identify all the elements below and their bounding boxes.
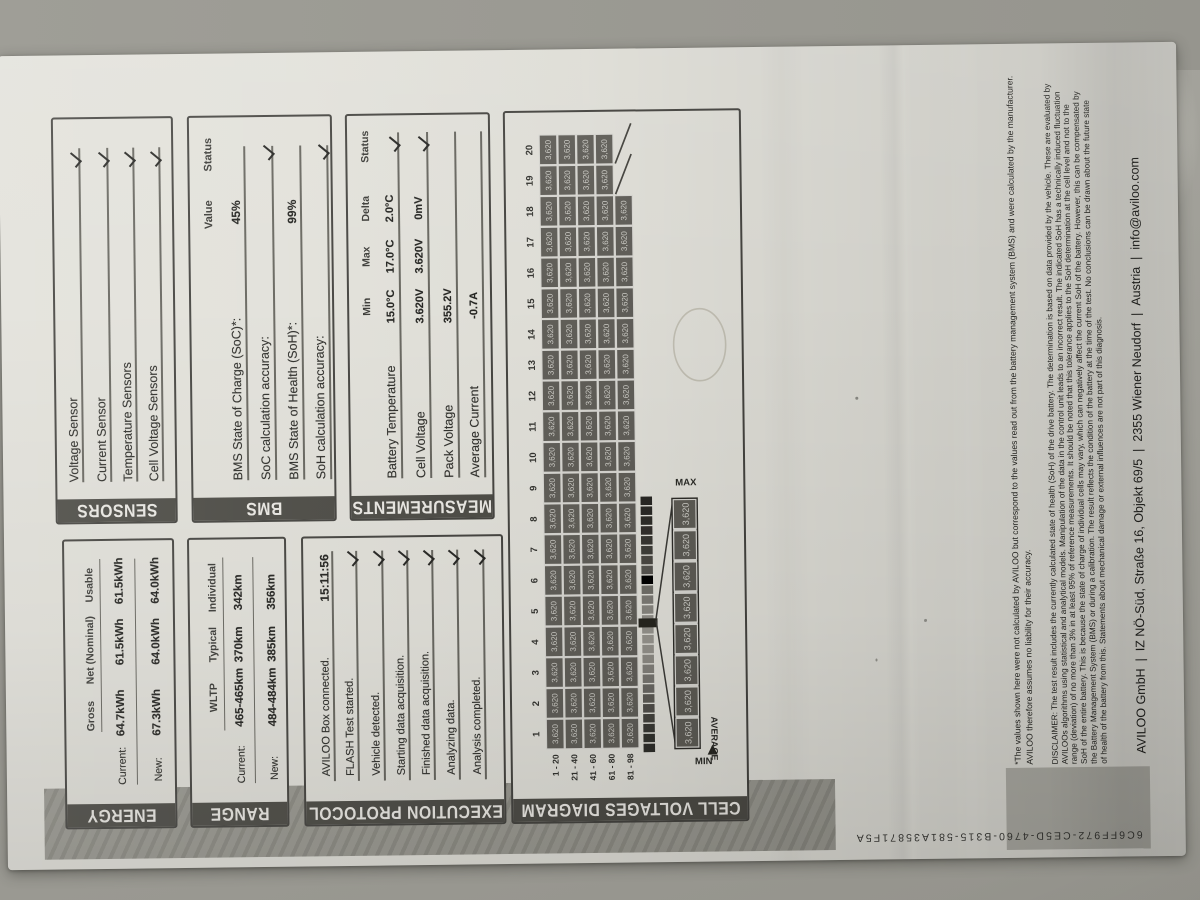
- svg-text:3,620: 3,620: [604, 477, 613, 498]
- svg-text:3,620: 3,620: [607, 692, 616, 713]
- svg-text:3,620: 3,620: [606, 661, 615, 682]
- svg-text:9: 9: [528, 486, 539, 491]
- svg-text:3,620: 3,620: [569, 693, 578, 714]
- svg-text:3,620: 3,620: [549, 570, 558, 591]
- svg-text:3,620: 3,620: [566, 385, 575, 406]
- svg-text:3,620: 3,620: [567, 477, 576, 498]
- svg-text:3,620: 3,620: [624, 569, 633, 590]
- svg-text:3,620: 3,620: [544, 170, 553, 191]
- svg-text:AVERAGE: AVERAGE: [709, 717, 720, 761]
- svg-text:21 - 40: 21 - 40: [569, 754, 579, 781]
- svg-text:3,620: 3,620: [681, 503, 691, 526]
- svg-text:61 - 80: 61 - 80: [607, 753, 617, 780]
- svg-text:3,620: 3,620: [585, 477, 594, 498]
- svg-text:3,620: 3,620: [622, 446, 631, 467]
- svg-text:13: 13: [527, 360, 538, 371]
- svg-text:7: 7: [529, 547, 540, 552]
- svg-text:15: 15: [526, 298, 537, 309]
- svg-text:3,620: 3,620: [567, 508, 576, 529]
- svg-text:3,620: 3,620: [548, 477, 557, 498]
- svg-text:3,620: 3,620: [606, 631, 615, 652]
- svg-text:3,620: 3,620: [586, 539, 595, 560]
- svg-text:3,620: 3,620: [550, 662, 559, 683]
- svg-text:3,620: 3,620: [582, 170, 591, 191]
- svg-text:3,620: 3,620: [565, 354, 574, 375]
- svg-text:3,620: 3,620: [682, 659, 692, 682]
- svg-text:3,620: 3,620: [683, 690, 693, 713]
- svg-text:2: 2: [531, 701, 542, 706]
- svg-text:3,620: 3,620: [626, 723, 635, 744]
- svg-text:3,620: 3,620: [620, 231, 629, 252]
- svg-text:3,620: 3,620: [566, 416, 575, 437]
- svg-text:3,620: 3,620: [546, 354, 555, 375]
- svg-text:3,620: 3,620: [588, 662, 597, 683]
- svg-text:17: 17: [525, 237, 536, 248]
- svg-text:3,620: 3,620: [600, 169, 609, 190]
- svg-text:3,620: 3,620: [586, 569, 595, 590]
- svg-text:3,620: 3,620: [588, 723, 597, 744]
- svg-text:3,620: 3,620: [564, 293, 573, 314]
- svg-text:3,620: 3,620: [549, 539, 558, 560]
- svg-text:3,620: 3,620: [621, 354, 630, 375]
- svg-text:3,620: 3,620: [682, 596, 692, 619]
- svg-text:3,620: 3,620: [583, 293, 592, 314]
- svg-text:3,620: 3,620: [602, 292, 611, 313]
- svg-text:19: 19: [525, 175, 536, 186]
- svg-text:3,620: 3,620: [602, 323, 611, 344]
- svg-text:3,620: 3,620: [570, 723, 579, 744]
- svg-text:3,620: 3,620: [623, 477, 632, 498]
- svg-text:5: 5: [530, 608, 541, 614]
- svg-text:3,620: 3,620: [582, 200, 591, 221]
- svg-text:81 - 98: 81 - 98: [625, 753, 635, 780]
- svg-text:3,620: 3,620: [569, 662, 578, 683]
- svg-text:3,620: 3,620: [585, 446, 594, 467]
- svg-text:3,620: 3,620: [547, 385, 556, 406]
- svg-text:3,620: 3,620: [620, 261, 629, 282]
- svg-text:3,620: 3,620: [565, 324, 574, 345]
- svg-text:3,620: 3,620: [603, 385, 612, 406]
- svg-text:3,620: 3,620: [567, 539, 576, 560]
- svg-text:3,620: 3,620: [681, 565, 691, 588]
- svg-text:3,620: 3,620: [619, 200, 628, 221]
- svg-text:3,620: 3,620: [588, 692, 597, 713]
- svg-text:3,620: 3,620: [584, 354, 593, 375]
- svg-text:3,620: 3,620: [682, 628, 692, 651]
- svg-text:3,620: 3,620: [601, 262, 610, 283]
- svg-text:3,620: 3,620: [583, 323, 592, 344]
- svg-text:3,620: 3,620: [601, 200, 610, 221]
- svg-text:3,620: 3,620: [683, 721, 693, 744]
- svg-text:3,620: 3,620: [620, 292, 629, 313]
- svg-text:3,620: 3,620: [605, 600, 614, 621]
- svg-text:3,620: 3,620: [568, 600, 577, 621]
- svg-text:3,620: 3,620: [622, 415, 631, 436]
- svg-text:3,620: 3,620: [604, 508, 613, 529]
- svg-text:3,620: 3,620: [563, 139, 572, 160]
- svg-text:3,620: 3,620: [549, 600, 558, 621]
- svg-text:3,620: 3,620: [605, 569, 614, 590]
- svg-text:3,620: 3,620: [544, 139, 553, 160]
- svg-text:3,620: 3,620: [550, 693, 559, 714]
- svg-text:3,620: 3,620: [621, 323, 630, 344]
- svg-text:3,620: 3,620: [547, 447, 556, 468]
- svg-text:3,620: 3,620: [625, 692, 634, 713]
- svg-text:3,620: 3,620: [566, 447, 575, 468]
- svg-text:3,620: 3,620: [583, 262, 592, 283]
- svg-text:16: 16: [526, 268, 537, 279]
- svg-text:3,620: 3,620: [622, 384, 631, 405]
- svg-text:3,620: 3,620: [585, 416, 594, 437]
- svg-text:4: 4: [530, 639, 541, 645]
- svg-text:3,620: 3,620: [546, 293, 555, 314]
- svg-text:3,620: 3,620: [546, 324, 555, 345]
- svg-text:3,620: 3,620: [563, 170, 572, 191]
- svg-text:3,620: 3,620: [603, 415, 612, 436]
- svg-text:3,620: 3,620: [624, 600, 633, 621]
- svg-text:3,620: 3,620: [582, 231, 591, 252]
- svg-text:3,620: 3,620: [625, 661, 634, 682]
- svg-text:3,620: 3,620: [625, 630, 634, 651]
- svg-text:3,620: 3,620: [601, 231, 610, 252]
- svg-text:3: 3: [531, 670, 542, 675]
- svg-text:41 - 60: 41 - 60: [588, 754, 598, 781]
- svg-text:3,620: 3,620: [587, 631, 596, 652]
- svg-text:20: 20: [524, 145, 535, 156]
- svg-text:3,620: 3,620: [605, 538, 614, 559]
- svg-text:3,620: 3,620: [563, 201, 572, 222]
- svg-text:3,620: 3,620: [584, 385, 593, 406]
- svg-text:3,620: 3,620: [564, 231, 573, 252]
- svg-text:3,620: 3,620: [602, 354, 611, 375]
- svg-text:3,620: 3,620: [681, 534, 691, 557]
- svg-text:3,620: 3,620: [623, 507, 632, 528]
- svg-text:3,620: 3,620: [569, 631, 578, 652]
- svg-text:3,620: 3,620: [604, 446, 613, 467]
- svg-text:3,620: 3,620: [568, 570, 577, 591]
- svg-text:3,620: 3,620: [551, 723, 560, 744]
- svg-text:MAX: MAX: [675, 477, 697, 488]
- svg-text:1: 1: [531, 731, 542, 737]
- svg-text:3,620: 3,620: [587, 600, 596, 621]
- svg-text:12: 12: [527, 391, 538, 402]
- svg-text:3,620: 3,620: [581, 139, 590, 160]
- svg-text:3,620: 3,620: [545, 262, 554, 283]
- svg-text:11: 11: [528, 421, 539, 432]
- svg-text:3,620: 3,620: [548, 508, 557, 529]
- svg-text:6: 6: [529, 578, 540, 583]
- svg-text:14: 14: [526, 329, 537, 340]
- svg-text:3,620: 3,620: [600, 139, 609, 160]
- svg-text:3,620: 3,620: [544, 201, 553, 222]
- svg-text:3,620: 3,620: [545, 231, 554, 252]
- svg-text:10: 10: [528, 452, 539, 463]
- svg-text:3,620: 3,620: [623, 538, 632, 559]
- svg-text:3,620: 3,620: [547, 416, 556, 437]
- svg-text:3,620: 3,620: [550, 631, 559, 652]
- svg-text:3,620: 3,620: [564, 262, 573, 283]
- svg-text:8: 8: [529, 516, 540, 521]
- svg-text:3,620: 3,620: [586, 508, 595, 529]
- svg-text:3,620: 3,620: [607, 723, 616, 744]
- svg-text:1 - 20: 1 - 20: [551, 754, 561, 776]
- svg-text:18: 18: [525, 206, 536, 217]
